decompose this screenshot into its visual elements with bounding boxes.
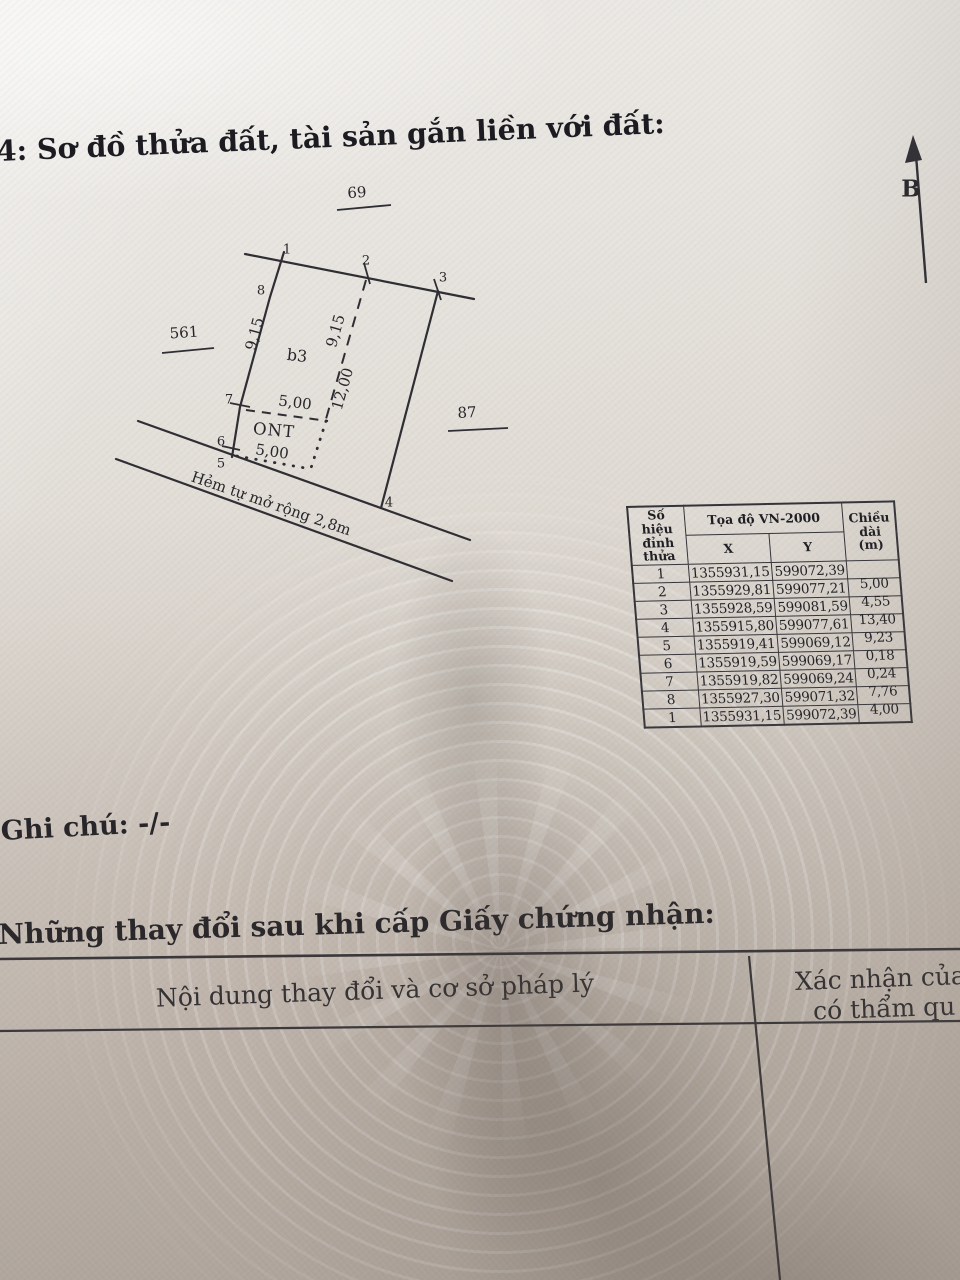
north-arrow xyxy=(905,135,926,283)
corner-header-line2: đỉnh thửa xyxy=(632,535,685,564)
vertex-id-cell: 6 xyxy=(639,654,696,673)
underline-561 xyxy=(162,348,214,353)
x-cell: 1355931,15 xyxy=(688,562,773,582)
x-column-header: X xyxy=(685,534,771,565)
changes-table-top-border xyxy=(0,949,960,959)
neighbor-top-label: 69 xyxy=(347,185,367,201)
zone-label: ONT xyxy=(252,421,295,441)
length-header-line3: (m) xyxy=(847,538,895,553)
x-cell: 1355915,80 xyxy=(692,616,777,636)
y-cell: 599081,59 xyxy=(774,597,851,617)
dotted-inner-vertical xyxy=(311,421,326,468)
y-cell: 599072,39 xyxy=(771,561,848,581)
x-cell: 1355919,82 xyxy=(696,670,781,690)
y-cell: 599077,21 xyxy=(773,579,850,599)
length-header-line1: Chiều xyxy=(845,510,893,525)
coordinate-table: Số hiệu đỉnh thửa Tọa độ VN-2000 Chiều d… xyxy=(626,500,913,728)
x-cell: 1355928,59 xyxy=(691,598,776,618)
vertex-label-7: 7 xyxy=(225,394,233,407)
corner-header-cell: Số hiệu đỉnh thửa xyxy=(627,506,688,566)
x-cell: 1355919,59 xyxy=(695,652,780,672)
vertex-id-cell: 5 xyxy=(638,636,695,655)
vertex-label-8: 8 xyxy=(257,285,265,298)
corner-header-line1: Số hiệu xyxy=(630,508,683,537)
vertex-id-cell: 1 xyxy=(643,708,700,728)
coords-group-header-cell: Tọa độ VN-2000 xyxy=(683,502,844,535)
measure-top-dashed: 5,00 xyxy=(278,394,313,413)
north-arrow-shaft xyxy=(916,155,926,283)
road-lower-line xyxy=(116,459,452,581)
vertex-label-1: 1 xyxy=(283,244,291,257)
measure-bottom-dotted: 5,00 xyxy=(254,442,289,462)
x-cell: 1355927,30 xyxy=(698,688,783,708)
neighbor-right-label: 87 xyxy=(457,405,477,421)
underline-87 xyxy=(448,428,508,431)
vertex-id-cell: 8 xyxy=(642,690,699,709)
changes-right-header-line2: có thẩm qu xyxy=(813,994,956,1024)
x-cell: 1355929,81 xyxy=(689,580,774,600)
vertex-id-cell: 3 xyxy=(635,600,692,619)
vertex-id-cell: 4 xyxy=(636,618,693,637)
changes-right-header-line1: Xác nhận của xyxy=(795,963,960,994)
vertex-label-4: 4 xyxy=(385,497,393,510)
y-cell: 599069,12 xyxy=(777,633,854,653)
y-cell: 599069,17 xyxy=(779,651,856,671)
plot-right-edge xyxy=(381,291,438,508)
changes-table-column-divider xyxy=(749,956,780,1280)
certificate-photo-page: 4: Sơ đồ thửa đất, tài sản gắn liền với … xyxy=(0,0,960,1280)
vertex-label-2: 2 xyxy=(362,255,370,268)
block-label: b3 xyxy=(286,347,308,365)
length-cell: 4,00 xyxy=(858,704,911,724)
length-header-cell: Chiều dài (m) xyxy=(842,501,899,561)
vertex-label-3: 3 xyxy=(439,272,447,285)
neighbor-left-label: 561 xyxy=(169,325,199,342)
vertex-id-cell: 7 xyxy=(640,672,697,691)
y-cell: 599077,61 xyxy=(776,615,853,635)
vertex-id-cell: 1 xyxy=(632,564,689,583)
x-cell: 1355919,41 xyxy=(694,634,779,654)
vertex-label-6: 6 xyxy=(217,436,225,449)
y-cell: 599071,32 xyxy=(781,687,858,707)
vertex-id-cell: 2 xyxy=(633,582,690,601)
y-cell: 599069,24 xyxy=(780,669,857,689)
x-cell: 1355931,15 xyxy=(699,706,784,726)
north-label: B xyxy=(901,178,920,201)
y-column-header: Y xyxy=(769,532,847,562)
vertex-label-5: 5 xyxy=(217,458,225,471)
north-arrow-head xyxy=(905,135,922,163)
underline-69 xyxy=(337,205,391,210)
y-cell: 599072,39 xyxy=(783,705,860,725)
